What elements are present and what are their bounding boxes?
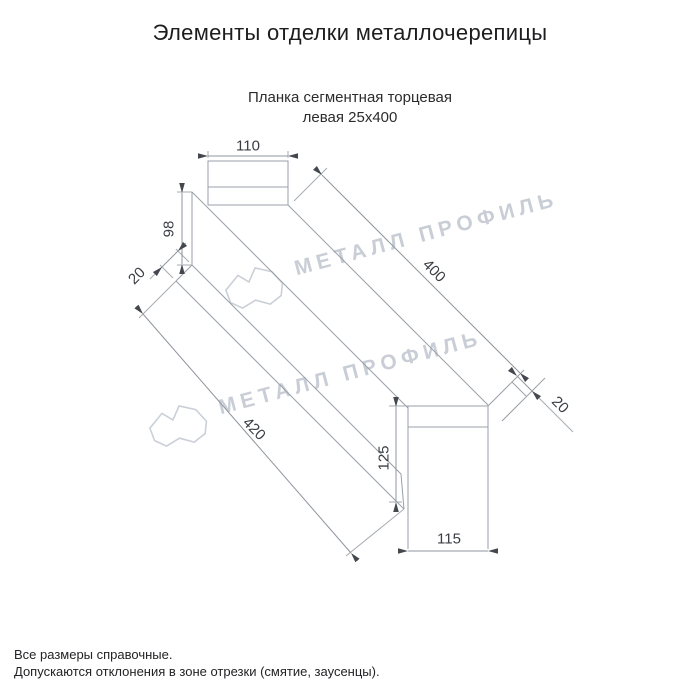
dimension-bottom-end-height: 125 (376, 445, 393, 470)
dimension-top-flange-width: 110 (236, 138, 260, 155)
dimension-bottom-end-width: 115 (437, 531, 461, 548)
dimension-left-end-height: 98 (161, 221, 178, 238)
footnotes: Все размеры справочные. Допускаются откл… (14, 646, 380, 680)
footnote-line-1: Все размеры справочные. (14, 646, 380, 663)
drawing-page: Элементы отделки металлочерепицы Планка … (0, 0, 700, 700)
dimension-lines (143, 156, 532, 553)
top-cross-section (208, 161, 288, 205)
extension-lines (139, 151, 573, 556)
strip-body (176, 192, 488, 509)
footnote-line-2: Допускаются отклонения в зоне отрезки (с… (14, 663, 380, 680)
bottom-cross-section (408, 406, 488, 549)
technical-drawing (0, 0, 700, 700)
